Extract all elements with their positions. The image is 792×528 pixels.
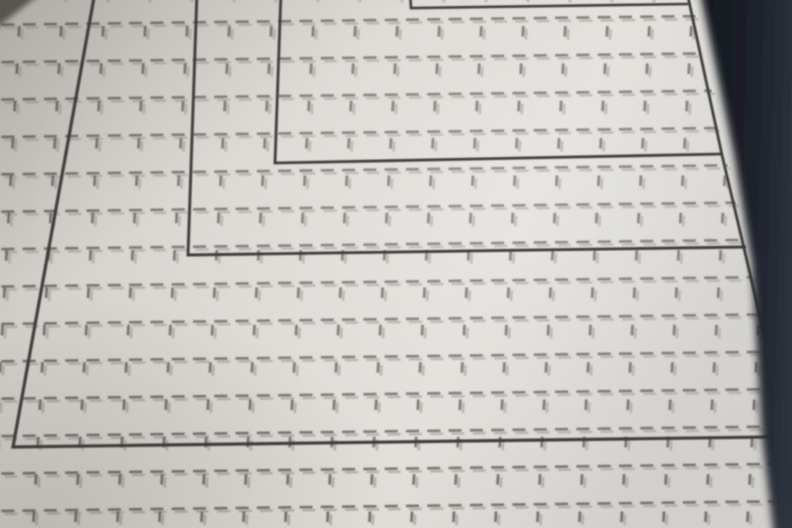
b7-outline bbox=[410, 0, 688, 8]
a5-outline bbox=[188, 0, 746, 255]
grid-row-dashes bbox=[0, 167, 792, 177]
grid-column-dashes bbox=[77, 0, 109, 528]
grid-column-dashes bbox=[707, 0, 739, 528]
grid-row-dashes bbox=[0, 15, 792, 25]
grid-column-dashes bbox=[329, 0, 361, 528]
grid-column-dashes bbox=[620, 0, 652, 528]
grid-column-dashes bbox=[704, 0, 736, 528]
grid-row-dashes bbox=[0, 280, 792, 290]
corner-shadow-topleft bbox=[0, 0, 40, 30]
grid-dashes bbox=[0, 0, 792, 528]
grid-column-dashes bbox=[539, 0, 571, 528]
size-code: A5 bbox=[199, 218, 256, 261]
grid-row-dashes bbox=[0, 354, 792, 364]
grid-row-dashes bbox=[0, 130, 792, 140]
cutting-mat-photo: B7 91mm x128mm B6 128mm x182mm A5 148mm … bbox=[0, 0, 792, 528]
grid-column-dashes bbox=[284, 0, 316, 528]
size-code: B6 bbox=[279, 130, 330, 168]
grid-column-dashes bbox=[536, 0, 568, 528]
grid-column-dashes bbox=[662, 0, 694, 528]
grid-column-dashes bbox=[326, 0, 358, 528]
grid-column-dashes bbox=[497, 0, 529, 528]
grid-row-dashes bbox=[0, 93, 792, 103]
grid-column-dashes bbox=[455, 0, 487, 528]
mat-markings bbox=[0, 0, 792, 528]
grid-row-dashes bbox=[0, 429, 792, 439]
grid-column-dashes bbox=[371, 0, 403, 528]
grid-column-dashes bbox=[452, 0, 484, 528]
grid-column-dashes bbox=[788, 0, 792, 528]
mat-surface bbox=[0, 0, 792, 528]
grid-column-dashes bbox=[116, 0, 148, 528]
size-code: B7 bbox=[401, 0, 444, 10]
grid-column-dashes bbox=[494, 0, 526, 528]
grid-row-dashes bbox=[0, 426, 792, 436]
grid-row-dashes bbox=[0, 317, 792, 327]
grid-row-dashes bbox=[0, 501, 792, 511]
shared-right-border bbox=[687, 0, 764, 335]
grid-row-dashes bbox=[0, 504, 792, 514]
grid-row-dashes bbox=[0, 242, 792, 252]
grid-row-dashes bbox=[0, 18, 792, 28]
grid-row-dashes bbox=[0, 127, 792, 137]
grid-row-dashes bbox=[0, 164, 792, 174]
grid-row-dashes bbox=[0, 392, 792, 402]
grid-row-dashes bbox=[0, 464, 792, 474]
grid-column-dashes bbox=[413, 0, 445, 528]
grid-column-dashes bbox=[749, 0, 781, 528]
lighting-shade-topleft bbox=[0, 0, 792, 528]
mat-background bbox=[0, 0, 792, 528]
grid-column-dashes bbox=[161, 0, 193, 528]
b6-outline bbox=[275, 0, 723, 163]
grid-column-dashes bbox=[119, 0, 151, 528]
grid-dash-shadows bbox=[0, 0, 792, 528]
grid-row-dashes bbox=[0, 351, 792, 361]
b5-outline bbox=[13, 0, 770, 447]
grid-column-dashes bbox=[200, 0, 232, 528]
lighting-shade-bottomleft bbox=[0, 0, 792, 528]
grid-row-dashes bbox=[0, 205, 792, 215]
size-dimensions: 182mm x257mm bbox=[97, 415, 288, 442]
grid-row-dashes bbox=[0, 239, 792, 249]
size-label-b5: B5 182mm x257mm bbox=[23, 395, 289, 449]
grid-column-dashes bbox=[32, 0, 64, 528]
grid-column-dashes bbox=[0, 0, 25, 528]
size-label-a5: A5 148mm x210mm bbox=[199, 214, 441, 261]
grid-row-dashes bbox=[0, 277, 792, 287]
size-outlines bbox=[13, 0, 770, 447]
grid-column-dashes bbox=[368, 0, 400, 528]
grid-row-dashes bbox=[0, 202, 792, 212]
grid-column-dashes bbox=[245, 0, 277, 528]
grid-row-dashes bbox=[0, 55, 792, 65]
grid-column-dashes bbox=[0, 0, 22, 528]
grid-column-dashes bbox=[746, 0, 778, 528]
grid-column-dashes bbox=[35, 0, 67, 528]
grid-column-dashes bbox=[74, 0, 106, 528]
grid-column-dashes bbox=[623, 0, 655, 528]
grid-column-dashes bbox=[578, 0, 610, 528]
size-dimensions: 91mm x128mm bbox=[450, 0, 573, 7]
grid-column-dashes bbox=[287, 0, 319, 528]
grid-row-dashes bbox=[0, 314, 792, 324]
lighting-highlight bbox=[0, 0, 792, 528]
grid-row-dashes bbox=[0, 90, 792, 100]
grid-row-dashes bbox=[0, 52, 792, 62]
grid-row-dashes bbox=[0, 389, 792, 399]
grid-row-dashes bbox=[0, 467, 792, 477]
grid-column-dashes bbox=[203, 0, 235, 528]
size-label-b7: B7 91mm x128mm bbox=[401, 0, 574, 10]
trimmer-edge-dark-band bbox=[700, 0, 792, 528]
grid-column-dashes bbox=[158, 0, 190, 528]
grid-column-dashes bbox=[581, 0, 613, 528]
size-code: B5 bbox=[23, 400, 89, 449]
grid-column-dashes bbox=[410, 0, 442, 528]
grid-column-dashes bbox=[242, 0, 274, 528]
size-dimensions: 128mm x182mm bbox=[336, 142, 496, 164]
size-label-b6: B6 128mm x182mm bbox=[279, 126, 498, 168]
size-dimensions: 148mm x210mm bbox=[264, 232, 440, 257]
grid-column-dashes bbox=[665, 0, 697, 528]
